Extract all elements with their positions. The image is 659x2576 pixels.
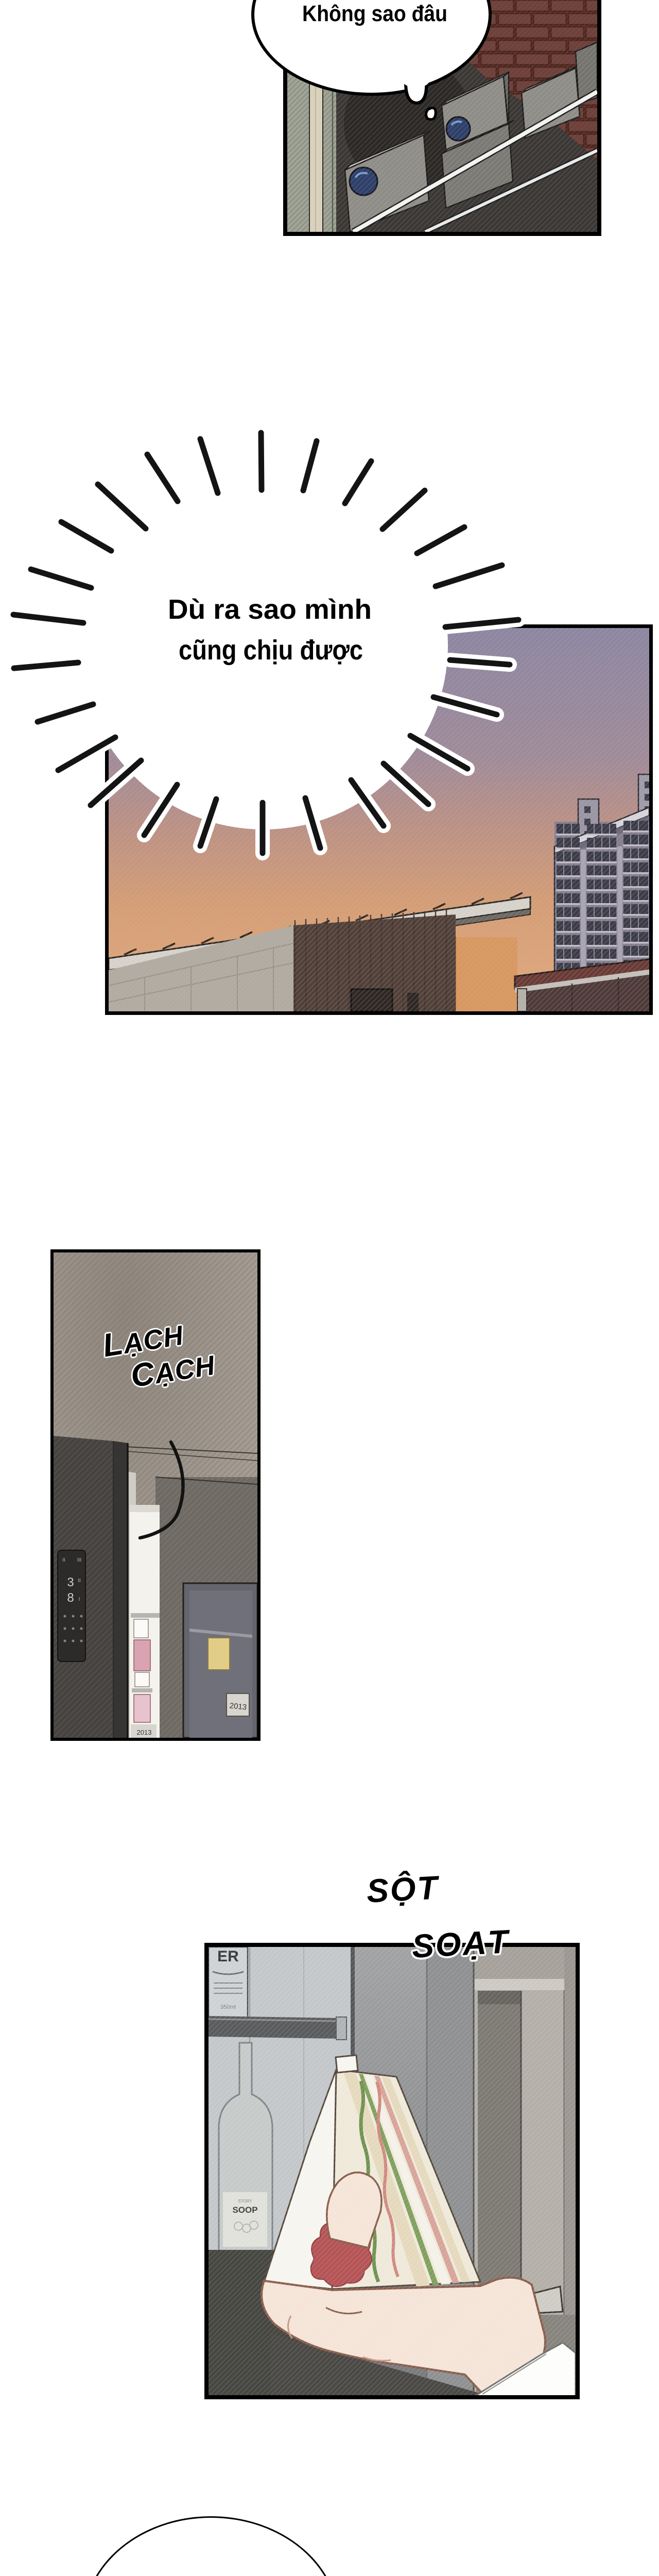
svg-text:2013: 2013 [137, 1728, 152, 1736]
svg-text:I: I [79, 1597, 80, 1602]
svg-text:II: II [62, 1557, 65, 1563]
svg-text:2013: 2013 [229, 1701, 247, 1711]
svg-text:cũng chịu được: cũng chịu được [179, 635, 363, 666]
svg-text:Dù ra sao mình: Dù ra sao mình [168, 594, 372, 625]
svg-text:II: II [78, 1578, 81, 1584]
svg-text:3: 3 [67, 1575, 74, 1589]
svg-text:III: III [77, 1557, 81, 1563]
svg-text:8: 8 [67, 1591, 74, 1605]
svg-text:Không sao đâu: Không sao đâu [302, 1, 447, 26]
